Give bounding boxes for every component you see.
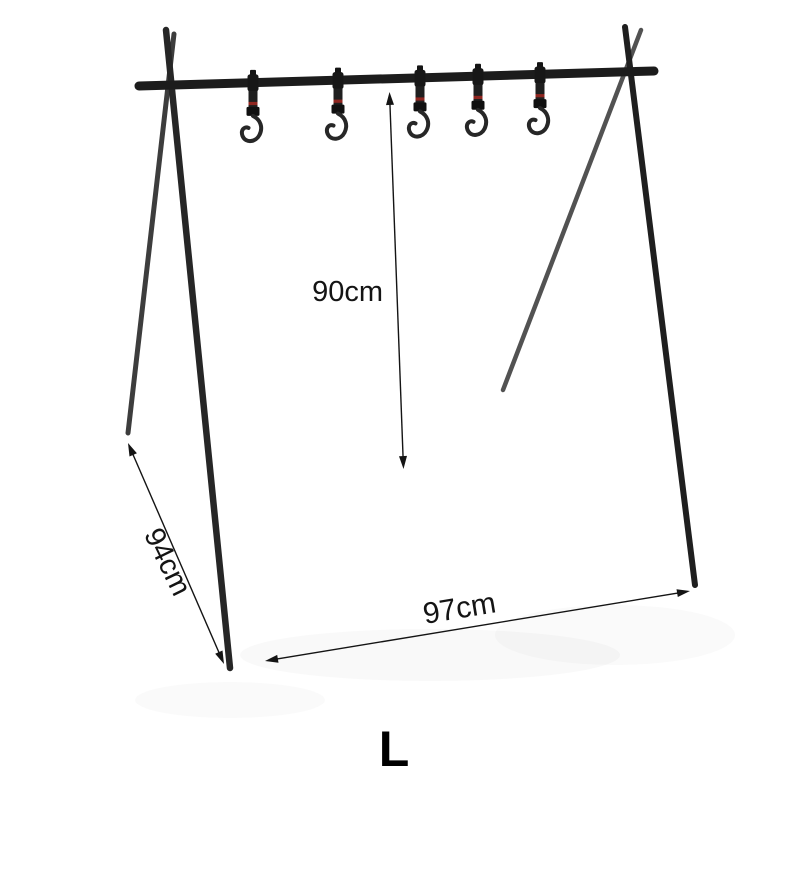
depth-dimension-label: 94cm — [137, 523, 197, 601]
size-label: L — [379, 721, 410, 777]
s-hook-icon — [409, 111, 428, 136]
height-dimension-label: 90cm — [312, 276, 383, 308]
product-diagram: 90cm 94cm 97cm L — [0, 0, 789, 889]
right-back-leg — [503, 30, 641, 390]
left-back-leg — [128, 34, 174, 433]
right-front-leg — [625, 27, 695, 585]
s-hook-icon — [467, 110, 486, 135]
s-hook-icon — [327, 114, 346, 139]
s-hook-icon — [242, 116, 261, 141]
rack-crossbar — [139, 71, 654, 86]
s-hook-icon — [529, 108, 548, 133]
height-dimension-arrow — [386, 92, 407, 469]
